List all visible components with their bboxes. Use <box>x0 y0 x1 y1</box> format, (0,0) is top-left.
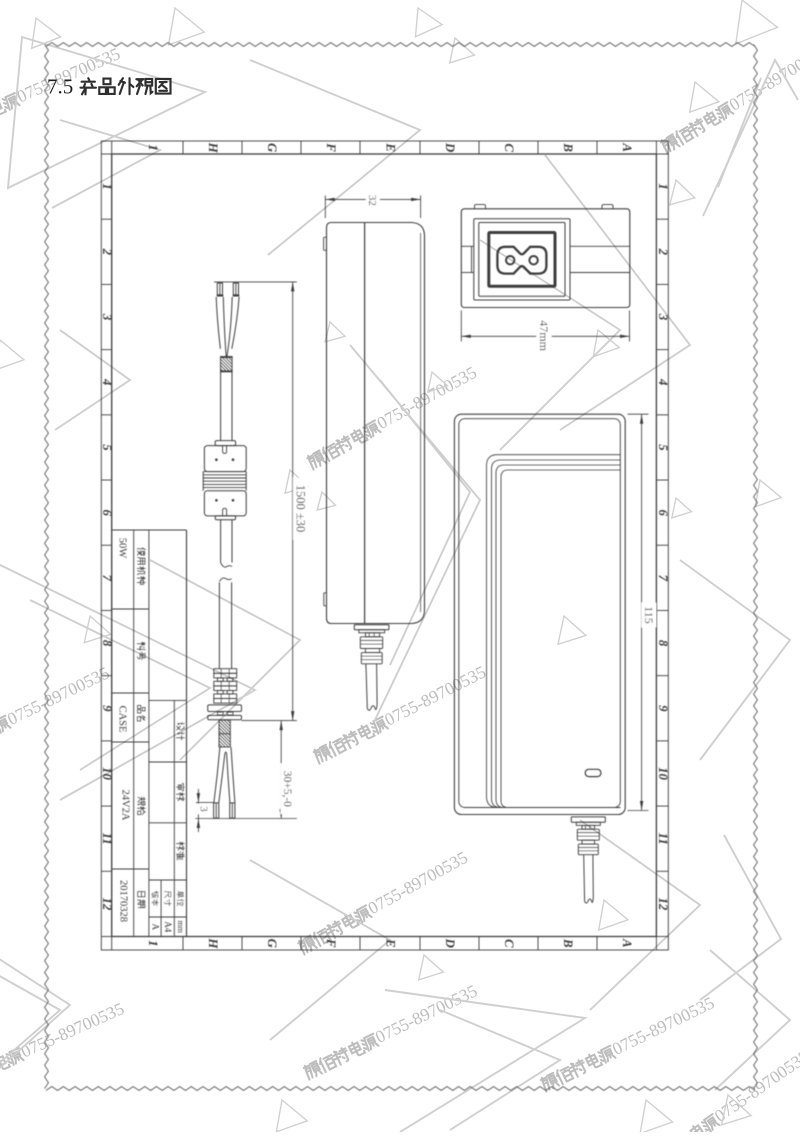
svg-text:30+5,-0: 30+5,-0 <box>281 771 293 807</box>
svg-text:20170328: 20170328 <box>118 880 129 922</box>
svg-text:12: 12 <box>656 897 670 910</box>
svg-text:A: A <box>150 923 160 930</box>
svg-text:7: 7 <box>656 575 670 582</box>
svg-text:D: D <box>443 938 457 948</box>
svg-text:C: C <box>502 939 516 948</box>
svg-text:H: H <box>206 142 220 154</box>
svg-text:50W: 50W <box>116 538 127 559</box>
svg-text:mm: mm <box>176 920 185 933</box>
svg-text:F: F <box>324 938 338 948</box>
svg-text:1: 1 <box>146 144 160 150</box>
svg-text:9: 9 <box>656 705 670 712</box>
svg-text:11: 11 <box>100 833 114 845</box>
svg-text:3: 3 <box>656 313 670 321</box>
svg-text:5: 5 <box>100 444 114 451</box>
svg-text:7: 7 <box>100 575 114 582</box>
svg-text:4: 4 <box>656 378 670 386</box>
svg-text:C: C <box>502 143 516 152</box>
svg-text:E: E <box>384 938 398 948</box>
svg-text:B: B <box>561 142 575 152</box>
svg-text:6: 6 <box>100 509 114 516</box>
svg-text:H: H <box>206 937 220 949</box>
svg-text:4: 4 <box>100 378 114 386</box>
svg-text:F: F <box>324 142 338 152</box>
svg-text:8: 8 <box>656 640 670 647</box>
svg-text:B: B <box>561 938 575 948</box>
svg-text:G: G <box>265 143 279 153</box>
svg-text:A: A <box>620 142 634 152</box>
svg-text:5: 5 <box>656 444 670 451</box>
svg-text:A: A <box>620 938 634 948</box>
svg-text:2: 2 <box>100 248 114 256</box>
svg-text:10: 10 <box>656 767 670 780</box>
svg-text:32: 32 <box>366 195 378 206</box>
svg-text:24V2A: 24V2A <box>120 790 131 821</box>
svg-text:2: 2 <box>656 248 670 256</box>
svg-text:CASE: CASE <box>116 706 127 733</box>
svg-text:1: 1 <box>100 183 114 189</box>
svg-text:E: E <box>384 142 398 152</box>
svg-text:1500 ±30: 1500 ±30 <box>294 485 308 533</box>
svg-text:3: 3 <box>198 806 210 812</box>
svg-text:10: 10 <box>100 767 114 780</box>
svg-text:D: D <box>443 142 457 152</box>
svg-text:115: 115 <box>642 606 656 624</box>
svg-text:A4: A4 <box>163 921 173 932</box>
svg-text:11: 11 <box>656 833 670 845</box>
svg-text:12: 12 <box>100 897 114 910</box>
svg-text:1: 1 <box>146 940 160 946</box>
svg-text:6: 6 <box>656 509 670 516</box>
svg-text:3: 3 <box>100 313 114 321</box>
svg-text:7.5: 7.5 <box>47 75 73 99</box>
svg-text:47mm: 47mm <box>537 320 551 351</box>
svg-text:8: 8 <box>100 640 114 647</box>
svg-text:1: 1 <box>656 183 670 189</box>
svg-text:G: G <box>265 939 279 949</box>
svg-text:9: 9 <box>100 705 114 712</box>
